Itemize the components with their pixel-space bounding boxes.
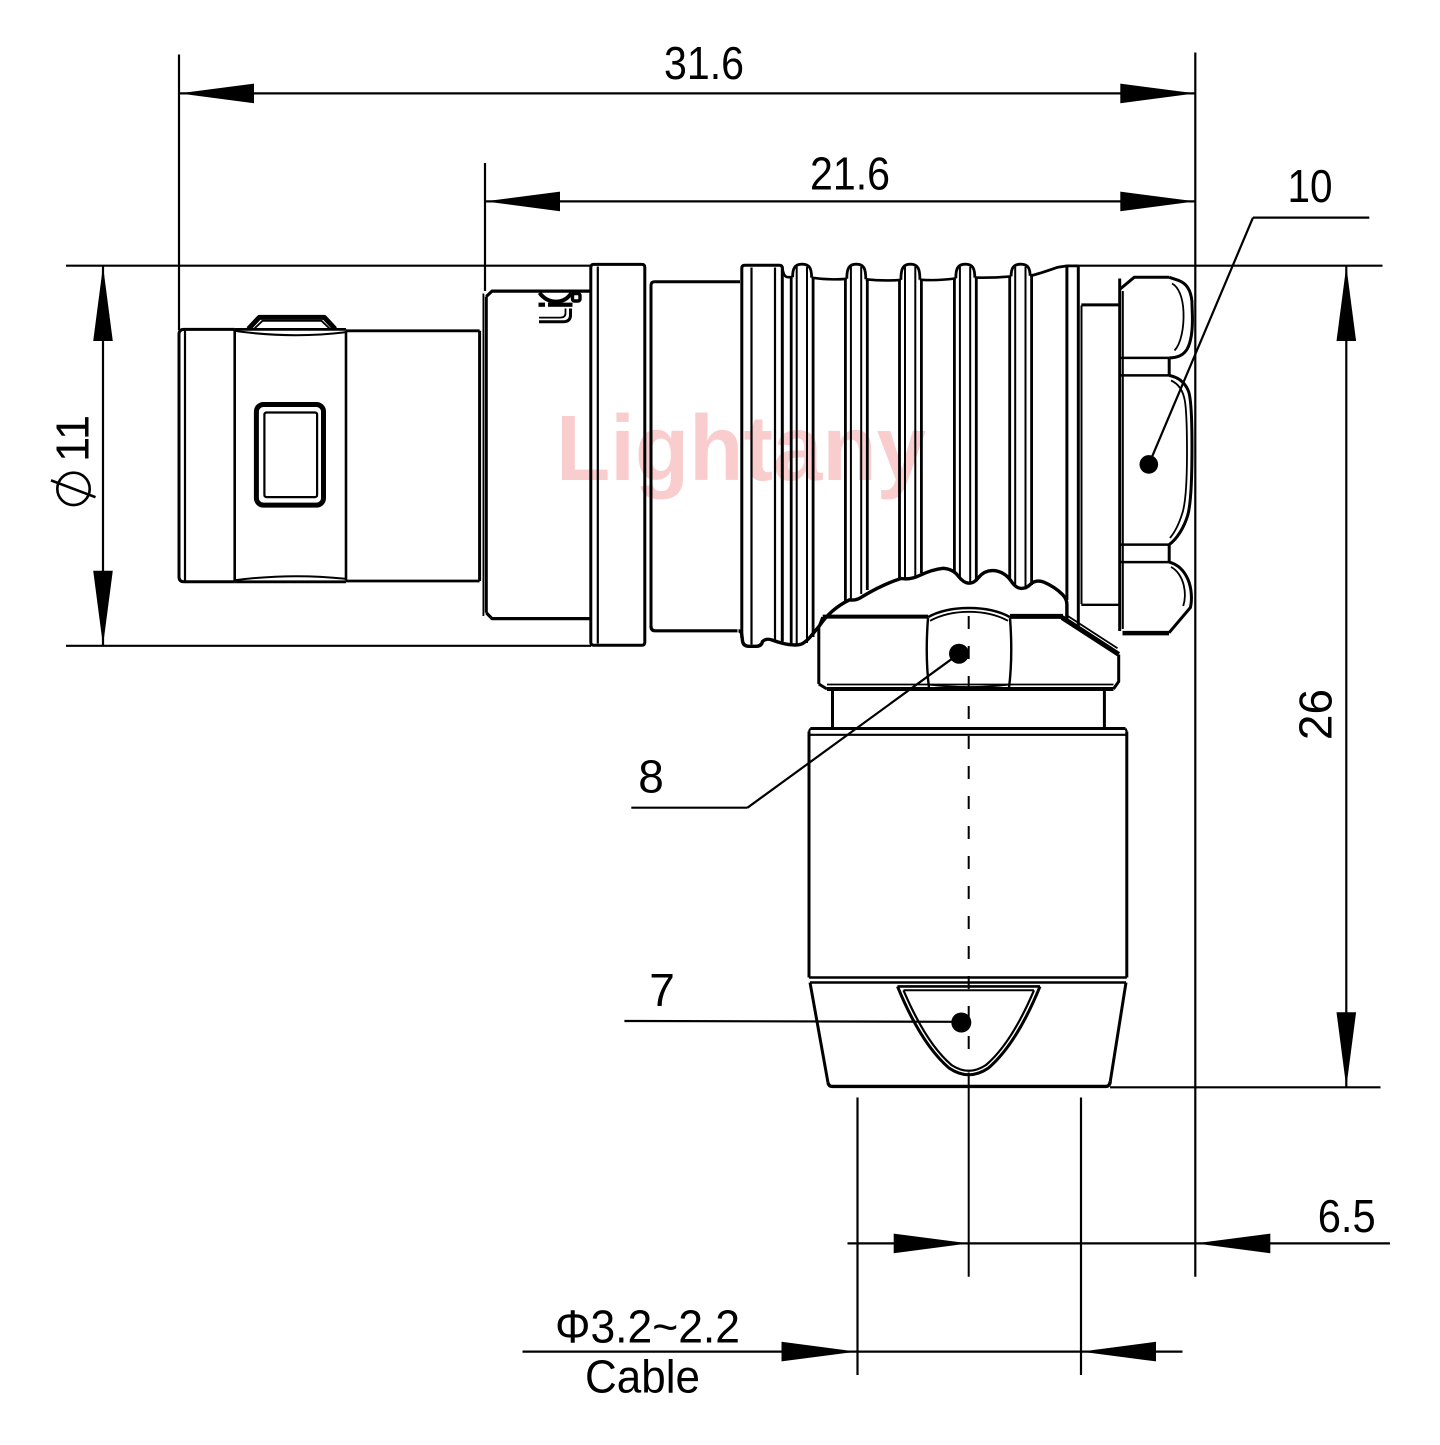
- svg-text:21.6: 21.6: [810, 147, 890, 199]
- svg-text:Cable: Cable: [585, 1351, 700, 1403]
- svg-text:7: 7: [649, 964, 675, 1016]
- svg-text:31.6: 31.6: [664, 37, 744, 89]
- svg-text:26: 26: [1289, 689, 1341, 740]
- svg-text:8: 8: [638, 751, 664, 803]
- svg-text:10: 10: [1288, 160, 1333, 212]
- svg-text:11: 11: [47, 415, 99, 462]
- svg-text:Φ3.2~2.2: Φ3.2~2.2: [555, 1301, 740, 1353]
- svg-text:6.5: 6.5: [1318, 1190, 1376, 1242]
